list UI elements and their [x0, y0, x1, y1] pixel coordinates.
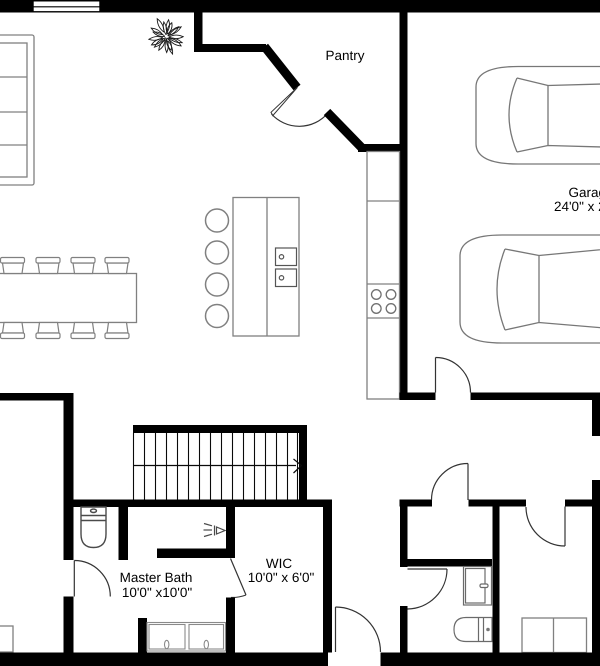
svg-text:10'0" x10'0": 10'0" x10'0": [122, 585, 192, 600]
svg-text:Garage: Garage: [568, 185, 600, 200]
svg-text:Master Bath: Master Bath: [120, 570, 193, 585]
svg-text:WIC: WIC: [266, 556, 292, 571]
svg-text:Pantry: Pantry: [325, 48, 364, 63]
svg-text:10'0" x 6'0": 10'0" x 6'0": [248, 570, 315, 585]
svg-text:24'0" x 24'0": 24'0" x 24'0": [554, 199, 600, 214]
